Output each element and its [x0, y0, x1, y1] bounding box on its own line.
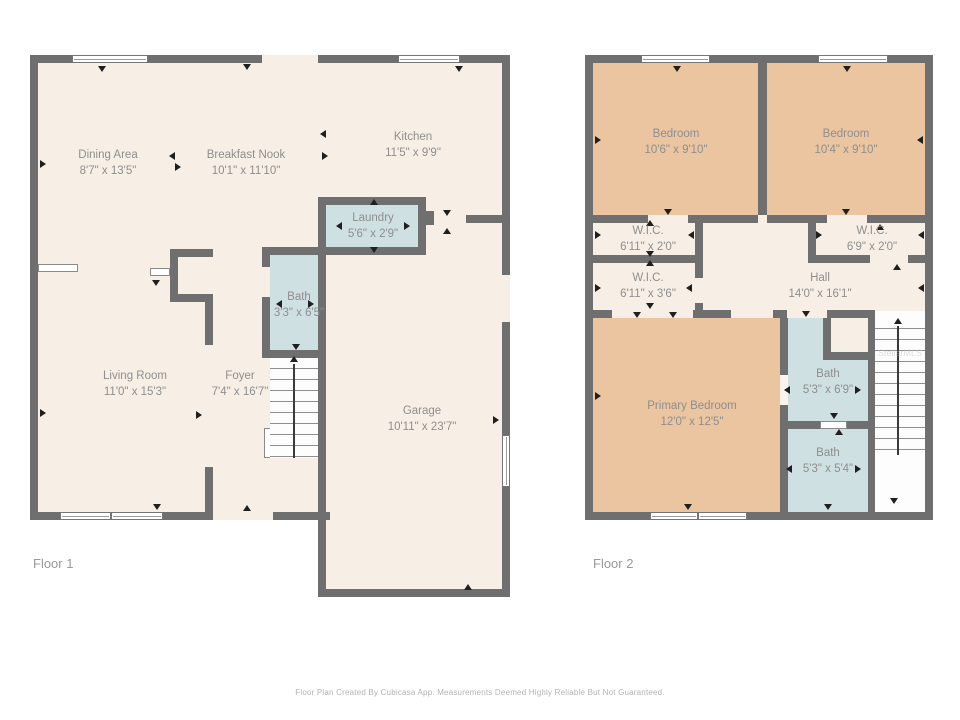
- wall-segment: [585, 55, 641, 63]
- window: [698, 512, 747, 520]
- stair-down-marker-icon: [890, 498, 898, 504]
- floor-plan-canvas: { "colors": { "wall": "#6f6f6f", "floor"…: [0, 0, 960, 720]
- room-label-bath1: Bath 3'3" x 6'5": [274, 290, 324, 321]
- room-dims: 3'3" x 6'5": [274, 306, 324, 322]
- door-arrow-icon: [196, 411, 202, 419]
- room-name: W.I.C.: [847, 224, 897, 240]
- staircase-floor2: [875, 318, 925, 455]
- door-arrow-icon: [175, 163, 181, 171]
- room-name: Living Room: [103, 369, 167, 385]
- door-arrow-icon: [595, 136, 601, 144]
- door-arrow-icon: [830, 413, 838, 419]
- door-arrow-icon: [843, 66, 851, 72]
- wall-segment: [30, 512, 60, 520]
- footer-disclaimer: Floor Plan Created By Cubicasa App. Meas…: [295, 688, 665, 697]
- wall-segment: [758, 63, 767, 215]
- door-leaf: [150, 268, 170, 276]
- wall-segment: [908, 255, 933, 263]
- front-door-opening: [213, 512, 273, 520]
- wall-segment: [693, 310, 731, 318]
- stair-up-arrow-icon: [290, 356, 298, 362]
- room-label-garage: Garage 10'11" x 23'7": [388, 404, 457, 435]
- wall-segment: [205, 467, 213, 512]
- door-arrow-icon: [292, 344, 300, 350]
- room-dims: 5'6" x 2'9": [348, 227, 398, 243]
- door-arrow-icon: [404, 222, 410, 230]
- staircase-floor1: [270, 358, 318, 458]
- room-name: Bedroom: [814, 127, 877, 143]
- window: [60, 512, 111, 520]
- room-dims: 6'11" x 3'6": [620, 287, 676, 303]
- door-arrow-icon: [918, 284, 924, 292]
- wall-segment: [767, 215, 827, 223]
- wall-segment: [585, 215, 648, 223]
- room-label-bath-lower: Bath 5'3" x 5'4": [803, 446, 853, 477]
- room-dims: 10'6" x 9'10": [644, 143, 707, 159]
- door-arrow-icon: [169, 152, 175, 160]
- room-label-breakfast-nook: Breakfast Nook 10'1" x 11'10": [207, 148, 286, 179]
- room-name: Garage: [388, 404, 457, 420]
- door-arrow-icon: [243, 64, 251, 70]
- watermark: StellarMLS: [878, 348, 922, 358]
- door-arrow-icon: [918, 231, 924, 239]
- room-dims: 5'3" x 6'9": [803, 383, 853, 399]
- room-dims: 5'3" x 5'4": [803, 462, 853, 478]
- room-name: Bath: [803, 367, 853, 383]
- window: [650, 512, 698, 520]
- door-arrow-icon: [646, 303, 654, 309]
- wall-segment: [502, 55, 510, 275]
- wall-segment: [710, 55, 818, 63]
- room-label-living-room: Living Room 11'0" x 15'3": [103, 369, 167, 400]
- wall-segment: [325, 589, 510, 597]
- window: [818, 55, 888, 63]
- room-dims: 12'0" x 12'5": [647, 415, 736, 431]
- room-dims: 10'1" x 11'10": [207, 164, 286, 180]
- room-dims: 11'0" x 15'3": [103, 385, 167, 401]
- stair-arrow-line: [897, 326, 899, 455]
- door-arrow-icon: [842, 209, 850, 215]
- room-label-bedroom-right: Bedroom 10'4" x 9'10": [814, 127, 877, 158]
- closet-nook-floor: [831, 318, 868, 352]
- wall-segment: [170, 249, 213, 257]
- door-arrow-icon: [824, 504, 832, 510]
- right-wall-opening: [502, 275, 510, 322]
- floor2-title: Floor 2: [593, 556, 633, 571]
- wall-segment: [205, 302, 213, 345]
- floor1-title: Floor 1: [33, 556, 73, 571]
- wall-segment: [867, 215, 933, 223]
- wall-segment: [30, 55, 38, 520]
- door-arrow-icon: [784, 386, 790, 394]
- room-name: Dining Area: [78, 148, 137, 164]
- wall-segment: [780, 318, 788, 375]
- door-arrow-icon: [40, 409, 46, 417]
- door-arrow-icon: [684, 504, 692, 510]
- door-arrow-icon: [669, 312, 677, 318]
- door-arrow-icon: [493, 416, 499, 424]
- top-wall-opening: [262, 55, 318, 63]
- wall-segment: [695, 223, 703, 278]
- door-arrow-icon: [322, 152, 328, 160]
- door-arrow-icon: [917, 136, 923, 144]
- wall-segment: [747, 512, 933, 520]
- door-arrow-icon: [464, 584, 472, 590]
- room-name: Bath: [803, 446, 853, 462]
- wall-segment: [847, 421, 868, 429]
- room-dims: 11'5" x 9'9": [385, 146, 441, 162]
- door-arrow-icon: [152, 280, 160, 286]
- door-arrow-icon: [855, 465, 861, 473]
- stair-arrow-line: [293, 364, 295, 458]
- window: [502, 435, 510, 487]
- window: [641, 55, 710, 63]
- room-dims: 10'11" x 23'7": [388, 420, 457, 436]
- room-dims: 10'4" x 9'10": [814, 143, 877, 159]
- room-name: Breakfast Nook: [207, 148, 286, 164]
- wall-segment: [585, 55, 593, 520]
- room-name: Foyer: [212, 369, 269, 385]
- wall-segment: [426, 211, 434, 225]
- wall-segment: [788, 421, 820, 429]
- wall-segment: [318, 197, 326, 597]
- door-arrow-icon: [336, 222, 342, 230]
- door-arrow-icon: [370, 247, 378, 253]
- door-arrow-icon: [153, 504, 161, 510]
- wall-segment: [262, 255, 270, 267]
- room-label-foyer: Foyer 7'4" x 16'7": [212, 369, 269, 400]
- wall-segment: [585, 255, 703, 263]
- wall-segment: [262, 297, 270, 358]
- wall-segment: [502, 322, 510, 435]
- wall-segment: [868, 311, 875, 512]
- wall-segment: [925, 55, 933, 520]
- room-dims: 6'11" x 2'0": [620, 240, 676, 256]
- door-arrow-icon: [893, 264, 901, 270]
- door-arrow-icon: [673, 66, 681, 72]
- door-arrow-icon: [98, 66, 106, 72]
- door-arrow-icon: [633, 312, 641, 318]
- room-name: Kitchen: [385, 130, 441, 146]
- room-label-hall: Hall 14'0" x 16'1": [788, 271, 851, 302]
- wall-segment: [170, 294, 213, 302]
- door-arrow-icon: [786, 465, 792, 473]
- room-dims: 7'4" x 16'7": [212, 385, 269, 401]
- room-label-laundry: Laundry 5'6" x 2'9": [348, 211, 398, 242]
- room-name: Bath: [274, 290, 324, 306]
- window: [111, 512, 163, 520]
- wall-segment: [585, 310, 612, 318]
- door-arrow-icon: [835, 429, 843, 435]
- wall-segment: [773, 310, 787, 318]
- room-name: W.I.C.: [620, 224, 676, 240]
- door-arrow-icon: [455, 66, 463, 72]
- wall-segment: [163, 512, 213, 520]
- room-name: W.I.C.: [620, 271, 676, 287]
- window: [398, 55, 460, 63]
- door-arrow-icon: [595, 284, 601, 292]
- stair-up-arrow-icon: [894, 318, 902, 324]
- door-arrow-icon: [370, 199, 378, 205]
- room-label-primary-bedroom: Primary Bedroom 12'0" x 12'5": [647, 399, 736, 430]
- room-label-dining-area: Dining Area 8'7" x 13'5": [78, 148, 137, 179]
- room-label-kitchen: Kitchen 11'5" x 9'9": [385, 130, 441, 161]
- room-label-wic-lower-left: W.I.C. 6'11" x 3'6": [620, 271, 676, 302]
- door-arrow-icon: [595, 231, 601, 239]
- room-dims: 14'0" x 16'1": [788, 287, 851, 303]
- door-arrow-icon: [443, 228, 451, 234]
- door-arrow-icon: [40, 160, 46, 168]
- room-label-wic-right: W.I.C. 6'9" x 2'0": [847, 224, 897, 255]
- room-dims: 6'9" x 2'0": [847, 240, 897, 256]
- wall-segment: [318, 55, 398, 63]
- wall-segment: [808, 255, 870, 263]
- wall-segment: [688, 215, 758, 223]
- door-arrow-icon: [686, 284, 692, 292]
- wall-segment: [466, 215, 502, 223]
- room-name: Bedroom: [644, 127, 707, 143]
- wall-segment: [262, 247, 426, 255]
- door-arrow-icon: [443, 210, 451, 216]
- door-arrow-icon: [243, 505, 251, 511]
- door-arrow-icon: [320, 130, 326, 138]
- wall-segment: [148, 55, 262, 63]
- door-leaf: [820, 421, 847, 429]
- door-arrow-icon: [664, 209, 672, 215]
- door-arrow-icon: [595, 392, 601, 400]
- window: [72, 55, 148, 63]
- wall-segment: [502, 487, 510, 597]
- room-label-bath-upper: Bath 5'3" x 6'9": [803, 367, 853, 398]
- room-dims: 8'7" x 13'5": [78, 164, 137, 180]
- garage-floor-extension: [326, 512, 502, 589]
- wall-segment: [585, 512, 650, 520]
- door-arrow-icon: [855, 386, 861, 394]
- door-arrow-icon: [688, 231, 694, 239]
- room-name: Primary Bedroom: [647, 399, 736, 415]
- room-label-wic-upper-left: W.I.C. 6'11" x 2'0": [620, 224, 676, 255]
- room-name: Hall: [788, 271, 851, 287]
- door-arrow-icon: [802, 311, 810, 317]
- door-leaf: [38, 264, 78, 272]
- wall-segment: [780, 405, 788, 512]
- door-arrow-icon: [816, 231, 822, 239]
- room-label-bedroom-left: Bedroom 10'6" x 9'10": [644, 127, 707, 158]
- door-arrow-icon: [646, 260, 654, 266]
- room-name: Laundry: [348, 211, 398, 227]
